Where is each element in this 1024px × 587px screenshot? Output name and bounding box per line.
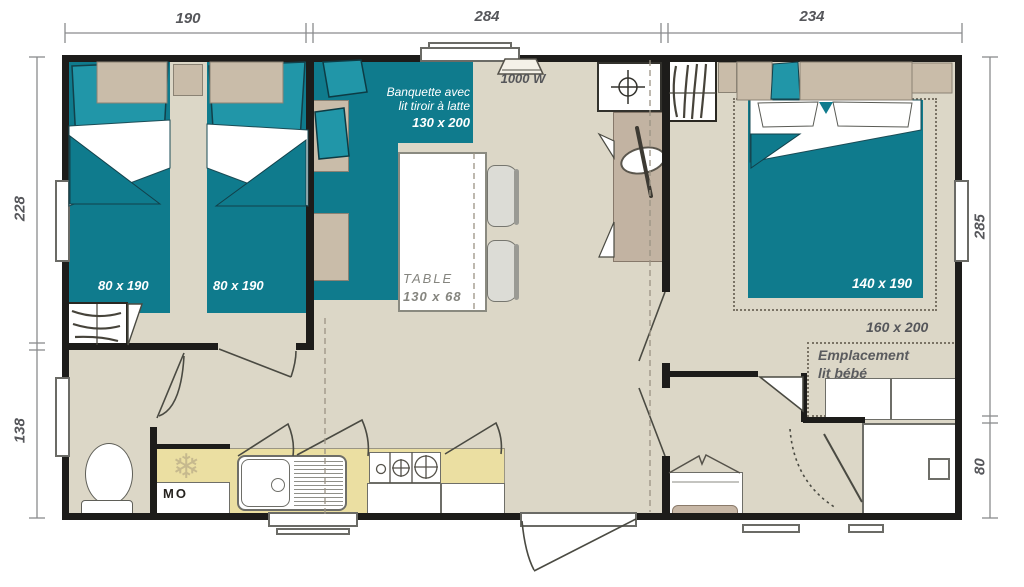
heater-watts-label: 1000 W xyxy=(488,72,558,87)
banquette-label: Banquette avec lit tiroir à latte 130 x … xyxy=(350,86,470,131)
window-top-sill xyxy=(428,42,512,49)
window-left-bedroom xyxy=(55,180,70,262)
dim-top-234: 234 xyxy=(782,8,842,25)
window-right-master xyxy=(954,180,969,262)
threshold-1 xyxy=(742,524,800,533)
dim-left-228: 228 xyxy=(11,179,28,239)
microwave-label: MO xyxy=(163,487,188,502)
entrance-door-opening xyxy=(520,512,637,527)
dim-left-138: 138 xyxy=(11,401,28,461)
table-size-label: 130 x 68 xyxy=(403,290,462,305)
window-bottom-kitchen xyxy=(268,512,358,527)
master-bed-option-size: 160 x 200 xyxy=(866,319,928,335)
dim-right-80: 80 xyxy=(971,437,988,497)
baby-spot-label-line2: lit bébé xyxy=(818,365,867,381)
window-left-toilet xyxy=(55,377,70,457)
exterior-wall xyxy=(62,55,962,520)
baby-spot-label-line1: Emplacement xyxy=(818,347,909,363)
banquette-label-size: 130 x 200 xyxy=(350,116,470,131)
window-bottom-sill xyxy=(276,528,350,535)
master-bed-size: 140 x 190 xyxy=(852,276,912,292)
banquette-label-line1: Banquette avec xyxy=(350,86,470,100)
threshold-2 xyxy=(848,524,884,533)
window-top xyxy=(420,47,520,62)
dim-top-284: 284 xyxy=(457,8,517,25)
floor-plan: ❄ xyxy=(0,0,1024,587)
dim-top-190: 190 xyxy=(158,10,218,27)
table-label: TABLE xyxy=(403,272,453,287)
dim-right-285: 285 xyxy=(971,197,988,257)
twin-bed-2-size: 80 x 190 xyxy=(213,279,264,294)
twin-bed-1-size: 80 x 190 xyxy=(98,279,149,294)
banquette-label-line2: lit tiroir à latte xyxy=(350,100,470,114)
